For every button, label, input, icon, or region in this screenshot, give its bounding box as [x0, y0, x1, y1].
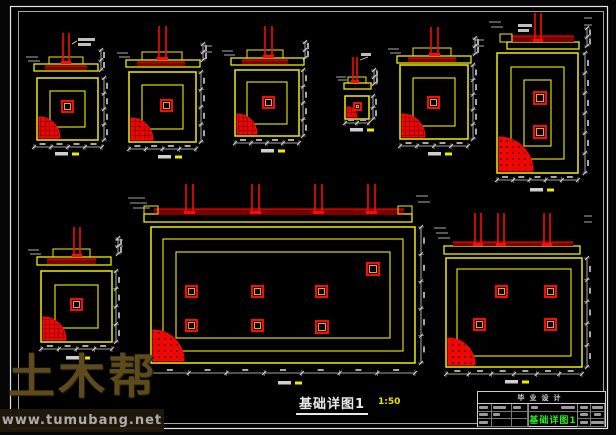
- cad-sheet: 土木帮 www.tumubang.net 基础详图1 1:50 毕业设计: [0, 0, 616, 435]
- title-block-drawing-name: 基础详图1: [529, 412, 577, 427]
- title-block-cell: [591, 419, 605, 427]
- title-block-cell: [578, 419, 591, 427]
- title-block-info-grid: [578, 404, 605, 427]
- title-block-cell: [591, 412, 605, 420]
- title-block-cell: [478, 404, 492, 412]
- title-block-cell: [492, 412, 512, 420]
- title-block-project: 毕业设计: [478, 392, 605, 404]
- watermark-url: www.tumubang.net: [2, 413, 162, 428]
- title-block-center: 基础详图1: [529, 404, 578, 427]
- sheet-caption-title: 基础详图1: [296, 393, 368, 415]
- title-block-cell: [512, 412, 528, 420]
- title-block-cell: [492, 419, 512, 427]
- title-block: 毕业设计 基础详图1: [477, 391, 606, 427]
- title-block-cell: [578, 404, 591, 412]
- title-block-cell: [578, 412, 591, 420]
- title-block-cell: [591, 404, 605, 412]
- title-block-cell: [478, 412, 492, 420]
- watermark-brand: 土木帮: [8, 354, 158, 401]
- sheet-caption-scale: 1:50: [378, 397, 400, 407]
- title-block-cell: [529, 404, 577, 412]
- watermark-strip: www.tumubang.net: [0, 409, 164, 432]
- title-block-cell: [512, 404, 528, 412]
- title-block-cell: [492, 404, 512, 412]
- title-block-cell: [512, 419, 528, 427]
- title-block-signature-grid: [478, 404, 529, 427]
- sheet-caption: 基础详图1 1:50: [296, 393, 400, 415]
- title-block-cell: [478, 419, 492, 427]
